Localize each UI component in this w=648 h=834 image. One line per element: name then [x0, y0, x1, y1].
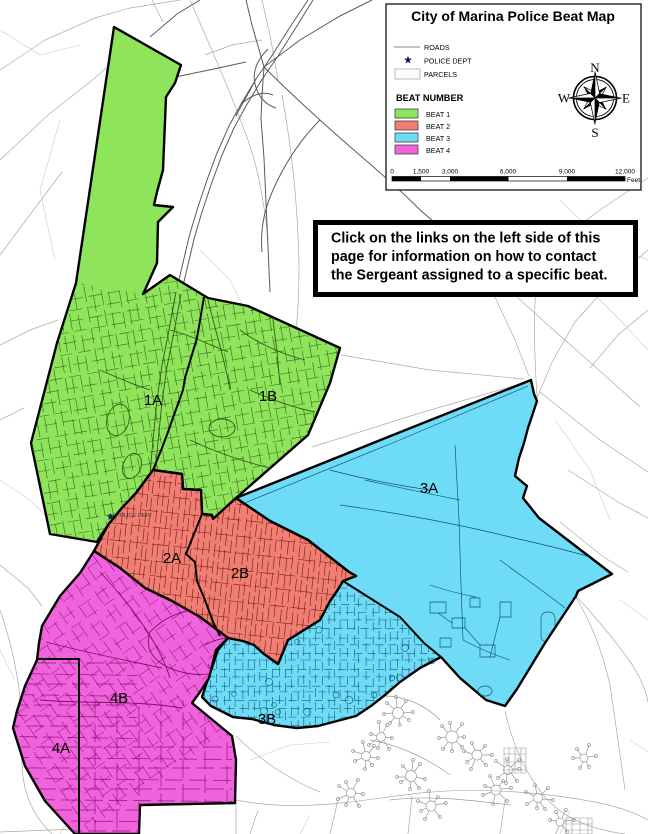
svg-text:1A: 1A [144, 392, 162, 409]
svg-text:W: W [558, 91, 571, 106]
svg-text:PARCELS: PARCELS [424, 70, 457, 79]
svg-text:BEAT 4: BEAT 4 [426, 146, 450, 155]
svg-text:BEAT NUMBER: BEAT NUMBER [396, 93, 464, 103]
svg-text:the Sergeant assigned to a spe: the Sergeant assigned to a specific beat… [331, 268, 608, 284]
svg-text:3A: 3A [420, 480, 438, 497]
svg-text:POLICE DEPT: POLICE DEPT [424, 57, 472, 66]
svg-text:S: S [591, 125, 598, 140]
svg-text:4A: 4A [52, 740, 70, 757]
svg-text:9,000: 9,000 [559, 169, 576, 176]
svg-text:BEAT 2: BEAT 2 [426, 122, 450, 131]
svg-text:City of Marina Police Beat Map: City of Marina Police Beat Map [411, 8, 615, 24]
svg-text:1B: 1B [259, 388, 277, 405]
svg-text:ROADS: ROADS [424, 43, 450, 52]
svg-text:0: 0 [390, 169, 394, 176]
svg-text:12,000: 12,000 [615, 169, 635, 176]
svg-text:2B: 2B [231, 565, 249, 582]
svg-text:Click on the links on the left: Click on the links on the left side of t… [331, 231, 600, 247]
svg-text:BEAT 1: BEAT 1 [426, 110, 450, 119]
svg-text:1,500: 1,500 [413, 169, 430, 176]
svg-text:2A: 2A [163, 550, 181, 567]
svg-text:4B: 4B [110, 690, 128, 707]
svg-text:Feet: Feet [627, 177, 640, 184]
svg-text:N: N [590, 60, 600, 75]
svg-text:E: E [622, 91, 630, 106]
svg-text:3B: 3B [258, 711, 276, 728]
svg-text:BEAT 3: BEAT 3 [426, 134, 450, 143]
svg-text:POLICE DEPT: POLICE DEPT [116, 513, 153, 519]
svg-text:6,000: 6,000 [500, 169, 517, 176]
svg-text:page for information on how to: page for information on how to contact [331, 249, 597, 265]
svg-text:3,000: 3,000 [442, 169, 459, 176]
